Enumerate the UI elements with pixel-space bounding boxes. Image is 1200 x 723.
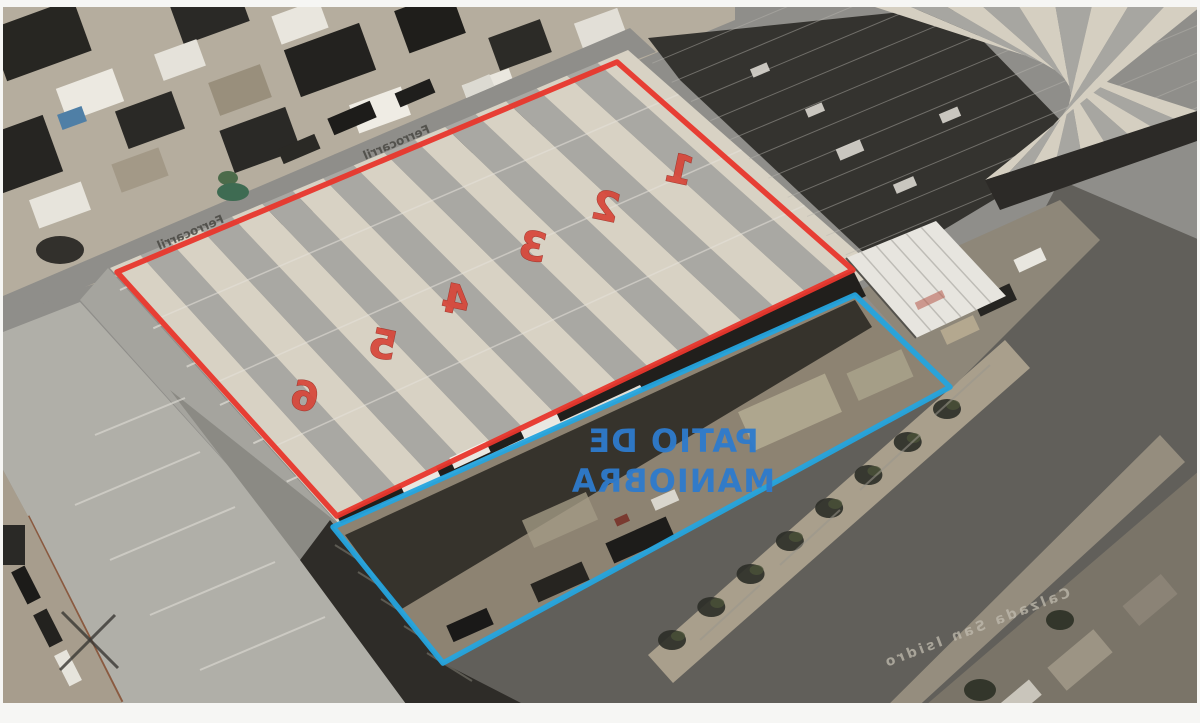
yard-label-line1: PATIO DE [587, 422, 758, 460]
aerial-photo-page: 1 2 3 4 5 6 PATIO DE MANIOBRA Ferrocarri… [0, 0, 1200, 723]
aerial-photo: 1 2 3 4 5 6 PATIO DE MANIOBRA Ferrocarri… [0, 0, 1200, 723]
yard-label-line2: MANIOBRA [571, 462, 775, 500]
